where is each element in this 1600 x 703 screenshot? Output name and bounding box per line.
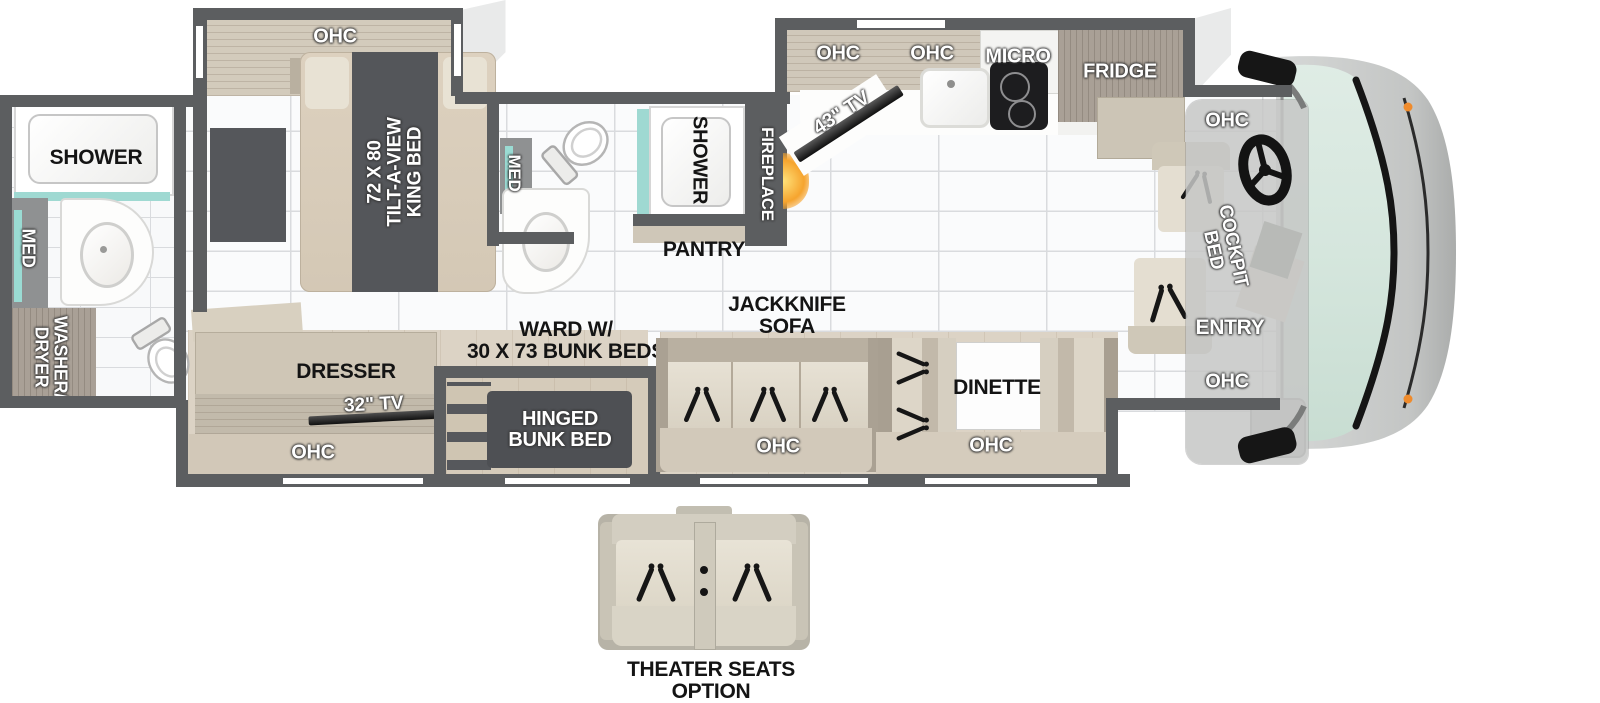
steering-wheel-icon xyxy=(1234,130,1296,210)
rv-floorplan: SHOWER MED WASHER/DRYER 72 X 80TILT-A-VI… xyxy=(0,0,1600,703)
king-bed-label: 72 X 80TILT-A-VIEWKING BED xyxy=(365,117,424,226)
wall xyxy=(186,95,198,107)
sofa-seam xyxy=(731,362,733,428)
window xyxy=(925,478,1097,484)
sofa-ohc-label: OHC xyxy=(756,437,800,458)
wall xyxy=(455,92,790,104)
theater-seats xyxy=(598,506,810,654)
theater-seats-option-label: THEATER SEATSOPTION xyxy=(627,659,795,703)
dinette-ohc-label: OHC xyxy=(969,436,1013,457)
seatbelt-icon xyxy=(894,402,934,446)
pantry-label: PANTRY xyxy=(663,239,745,261)
cupholder-dot xyxy=(700,566,708,574)
king-bed-pillow xyxy=(305,57,349,109)
bedroom-ohc-label: OHC xyxy=(313,27,357,48)
ward-label: WARD W/30 X 73 BUNK BEDS xyxy=(467,319,665,363)
window xyxy=(700,478,868,484)
wall xyxy=(1195,85,1292,97)
wall xyxy=(487,232,574,244)
seatbelt-icon xyxy=(678,382,726,424)
bunk-ladder xyxy=(447,382,491,470)
pantry-wall xyxy=(633,214,757,226)
side-mirror-icon xyxy=(1230,46,1320,114)
sofa-seam xyxy=(799,362,801,428)
jackknife-sofa-label: JACKKNIFESOFA xyxy=(728,294,845,338)
front-ohc-bottom-label: OHC xyxy=(1205,372,1249,393)
hinged-bunk-label: HINGEDBUNK BED xyxy=(508,409,611,451)
rear-sink-faucet xyxy=(100,246,107,253)
rear-shower-label: SHOWER xyxy=(50,147,143,169)
wall xyxy=(193,8,463,20)
wall xyxy=(775,18,1195,30)
rear-med-label: MED xyxy=(19,228,38,267)
wall xyxy=(0,95,12,408)
seatbelt-icon xyxy=(744,382,792,424)
window xyxy=(283,478,423,484)
wall xyxy=(1118,398,1280,410)
entry-label: ENTRY xyxy=(1196,317,1265,339)
wall xyxy=(1183,18,1195,97)
wall xyxy=(174,95,186,408)
rear-sink-bowl xyxy=(80,222,134,288)
seatbelt-icon xyxy=(630,558,682,604)
wall xyxy=(1106,398,1118,487)
wall xyxy=(0,396,186,408)
kitchen-sink xyxy=(920,68,990,128)
seatbelt-icon xyxy=(894,346,934,390)
window xyxy=(454,24,461,76)
cooktop-burner xyxy=(1000,72,1030,102)
kitchen-faucet xyxy=(947,80,955,88)
bedroom-tv-cabinet xyxy=(210,128,286,242)
sofa-back xyxy=(668,338,868,364)
seatbelt-icon xyxy=(806,382,854,424)
cupholder-dot xyxy=(700,588,708,596)
kitchen-ohc2-label: OHC xyxy=(910,44,954,65)
window xyxy=(857,20,945,28)
dinette-label: DINETTE xyxy=(953,377,1041,399)
fireplace-label: FIREPLACE xyxy=(758,127,776,221)
bunk-ohc-label: OHC xyxy=(291,443,335,464)
kitchen-ohc1-label: OHC xyxy=(816,44,860,65)
mid-med-label: MED xyxy=(505,155,523,192)
cooktop-burner xyxy=(1008,100,1036,128)
wall xyxy=(487,104,499,246)
wall xyxy=(0,95,186,107)
window xyxy=(196,26,203,78)
mid-shower-label: SHOWER xyxy=(689,116,710,204)
theater-console xyxy=(694,522,716,650)
window xyxy=(505,478,630,484)
dresser-label: DRESSER xyxy=(296,361,395,383)
micro-label: MICRO xyxy=(985,47,1050,68)
ward-wall xyxy=(434,366,446,480)
wall xyxy=(775,18,787,104)
mid-shower-glass xyxy=(637,109,649,216)
seatbelt-icon xyxy=(726,558,778,604)
ward-wall xyxy=(434,366,660,378)
washer-dryer-label: WASHER/DRYER xyxy=(32,316,69,398)
